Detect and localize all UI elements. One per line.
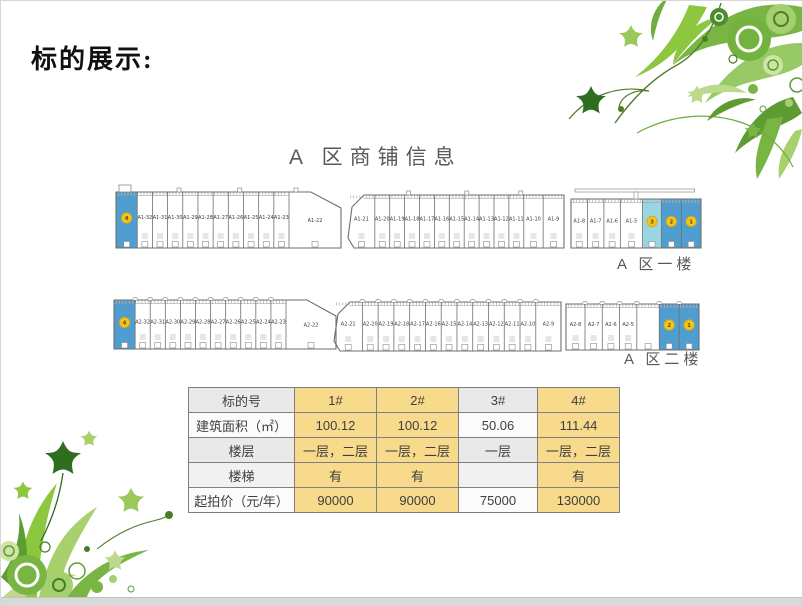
svg-text:A2-30: A2-30 xyxy=(165,320,180,326)
svg-text:4: 4 xyxy=(123,321,127,327)
svg-text:A1-6: A1-6 xyxy=(606,219,618,225)
svg-text:A1-25: A1-25 xyxy=(244,215,259,221)
svg-text:A2-32: A2-32 xyxy=(135,320,150,326)
svg-text:A2-21: A2-21 xyxy=(341,322,356,328)
page-title: 标的展示: xyxy=(31,39,154,76)
svg-text:A2-31: A2-31 xyxy=(150,320,165,326)
table-row: 标的号1#2#3#4# xyxy=(189,388,620,413)
svg-text:A2-6: A2-6 xyxy=(605,322,617,328)
svg-text:A2-8: A2-8 xyxy=(570,322,582,328)
floor2-label: A 区二楼 xyxy=(624,348,702,369)
svg-text:A1-32: A1-32 xyxy=(137,215,152,221)
svg-text:A2-14: A2-14 xyxy=(457,322,472,328)
svg-text:4: 4 xyxy=(125,216,129,222)
floral-decoration-bottom-left xyxy=(1,429,191,597)
svg-text:A2-13: A2-13 xyxy=(473,322,488,328)
table-cell: 楼梯 xyxy=(189,463,295,488)
table-cell: 有 xyxy=(295,463,377,488)
svg-text:A1-14: A1-14 xyxy=(464,217,479,223)
svg-text:A2-22: A2-22 xyxy=(304,323,319,329)
table-cell: 起拍价（元/年） xyxy=(189,488,295,513)
svg-text:3: 3 xyxy=(650,220,654,226)
svg-text:A2-7: A2-7 xyxy=(588,322,600,328)
floor1-label: A 区一楼 xyxy=(617,253,695,274)
svg-text:A1-8: A1-8 xyxy=(573,219,585,225)
table-row: 楼层一层，二层一层，二层一层一层，二层 xyxy=(189,438,620,463)
svg-text:A1-23: A1-23 xyxy=(274,215,289,221)
table-header-cell: 标的号 xyxy=(189,388,295,413)
svg-text:A1-10: A1-10 xyxy=(526,217,541,223)
svg-text:A2-11: A2-11 xyxy=(505,322,520,328)
svg-text:A2-26: A2-26 xyxy=(226,320,241,326)
svg-text:A2-18: A2-18 xyxy=(394,322,409,328)
svg-text:A1-12: A1-12 xyxy=(494,217,509,223)
table-cell: 楼层 xyxy=(189,438,295,463)
table-cell: 100.12 xyxy=(295,413,377,438)
slide-footer-bar xyxy=(1,597,802,605)
table-cell: 一层，二层 xyxy=(538,438,620,463)
building-floorplan: A2-8A2-7A2-6A2-521 xyxy=(566,301,699,350)
building-floorplan: 4A1-32A1-31A1-30A1-29A1-28A1-27A1-26A1-2… xyxy=(116,185,341,248)
svg-text:2: 2 xyxy=(669,220,673,226)
svg-text:A2-29: A2-29 xyxy=(181,320,196,326)
svg-text:A2-25: A2-25 xyxy=(241,320,256,326)
table-header-cell: 2# xyxy=(377,388,459,413)
svg-text:A2-9: A2-9 xyxy=(543,322,555,328)
svg-text:A1-19: A1-19 xyxy=(390,217,405,223)
table-cell: 一层，二层 xyxy=(295,438,377,463)
table-row: 楼梯有有有 xyxy=(189,463,620,488)
building-floorplan: 4A2-32A2-31A2-30A2-29A2-28A2-27A2-26A2-2… xyxy=(114,297,336,349)
svg-text:A2-16: A2-16 xyxy=(426,322,441,328)
table-header-cell: 1# xyxy=(295,388,377,413)
svg-text:A2-17: A2-17 xyxy=(410,322,425,328)
svg-text:A1-30: A1-30 xyxy=(168,215,183,221)
slide: 标的展示: xyxy=(0,0,803,606)
svg-text:A2-15: A2-15 xyxy=(442,322,457,328)
table-cell: 有 xyxy=(538,463,620,488)
svg-text:A1-27: A1-27 xyxy=(213,215,228,221)
svg-text:A1-21: A1-21 xyxy=(354,217,369,223)
table-cell: 建筑面积（㎡） xyxy=(189,413,295,438)
table-row: 建筑面积（㎡）100.12100.1250.06111.44 xyxy=(189,413,620,438)
svg-text:A2-28: A2-28 xyxy=(196,320,211,326)
svg-text:A1-16: A1-16 xyxy=(434,217,449,223)
svg-text:A1-13: A1-13 xyxy=(479,217,494,223)
building-floorplan: A1-21A1-20A1-19A1-18A1-17A1-16A1-15A1-14… xyxy=(348,191,564,248)
svg-text:A1-26: A1-26 xyxy=(228,215,243,221)
table-cell xyxy=(459,463,538,488)
table-cell: 111.44 xyxy=(538,413,620,438)
svg-text:A1-18: A1-18 xyxy=(405,217,420,223)
building-floorplan: A2-21A2-20A2-19A2-18A2-17A2-16A2-15A2-14… xyxy=(334,299,561,351)
svg-text:1: 1 xyxy=(687,323,691,329)
svg-text:A2-10: A2-10 xyxy=(521,322,536,328)
floorplan-canvas: 4A1-32A1-31A1-30A1-29A1-28A1-27A1-26A1-2… xyxy=(101,176,711,376)
svg-text:A2-23: A2-23 xyxy=(271,320,286,326)
svg-text:A1-17: A1-17 xyxy=(420,217,435,223)
svg-text:A2-20: A2-20 xyxy=(363,322,378,328)
table-header-cell: 3# xyxy=(459,388,538,413)
table-cell: 有 xyxy=(377,463,459,488)
table-row: 起拍价（元/年）900009000075000130000 xyxy=(189,488,620,513)
svg-text:A2-19: A2-19 xyxy=(379,322,394,328)
svg-text:A1-31: A1-31 xyxy=(153,215,168,221)
shop-info-table: 标的号1#2#3#4#建筑面积（㎡）100.12100.1250.06111.4… xyxy=(188,387,620,513)
table-cell: 一层 xyxy=(459,438,538,463)
table-cell: 90000 xyxy=(295,488,377,513)
svg-text:A1-15: A1-15 xyxy=(449,217,464,223)
svg-text:A1-28: A1-28 xyxy=(198,215,213,221)
table-cell: 100.12 xyxy=(377,413,459,438)
svg-text:A2-5: A2-5 xyxy=(622,322,634,328)
svg-text:A1-7: A1-7 xyxy=(590,219,602,225)
svg-text:1: 1 xyxy=(689,220,693,226)
svg-text:A1-5: A1-5 xyxy=(626,219,638,225)
floral-decoration-top-right xyxy=(557,1,802,179)
building-floorplan: A1-8A1-7A1-6A1-5321 xyxy=(571,189,701,248)
table-cell: 一层，二层 xyxy=(377,438,459,463)
svg-text:A1-29: A1-29 xyxy=(183,215,198,221)
table-cell: 50.06 xyxy=(459,413,538,438)
svg-text:A1-9: A1-9 xyxy=(548,217,560,223)
table-cell: 130000 xyxy=(538,488,620,513)
svg-text:A1-22: A1-22 xyxy=(308,218,323,224)
table-header-cell: 4# xyxy=(538,388,620,413)
svg-text:2: 2 xyxy=(667,323,671,329)
table-cell: 75000 xyxy=(459,488,538,513)
svg-text:A1-11: A1-11 xyxy=(509,217,524,223)
svg-text:A2-24: A2-24 xyxy=(256,320,271,326)
svg-text:A1-20: A1-20 xyxy=(375,217,390,223)
section-heading: A 区商铺信息 xyxy=(289,141,462,171)
svg-text:A2-12: A2-12 xyxy=(489,322,504,328)
svg-text:A2-27: A2-27 xyxy=(211,320,226,326)
svg-text:A1-24: A1-24 xyxy=(259,215,274,221)
table-cell: 90000 xyxy=(377,488,459,513)
